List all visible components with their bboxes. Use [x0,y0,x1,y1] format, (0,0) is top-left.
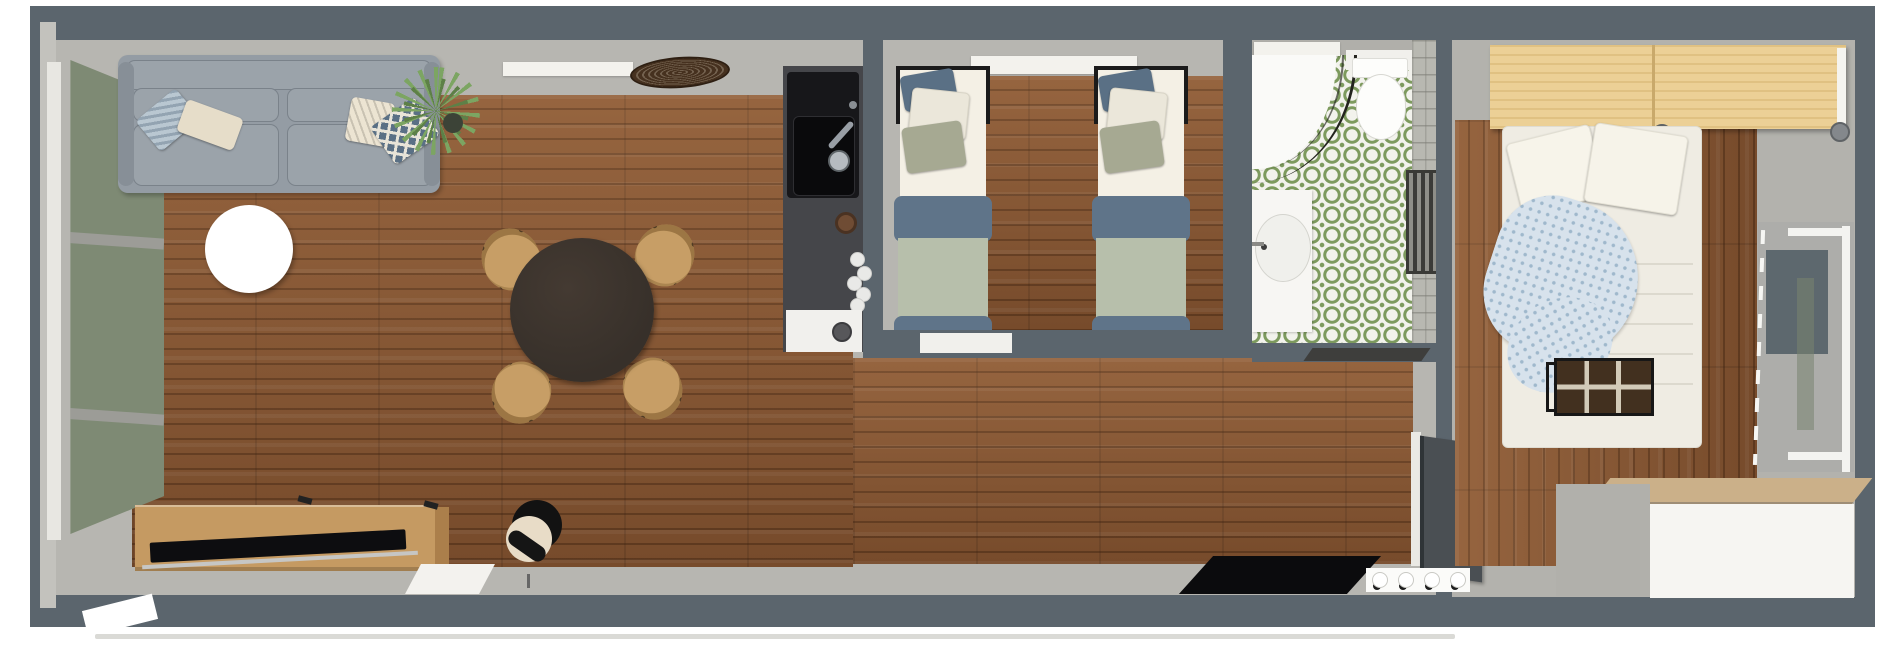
wall-hook[interactable] [1398,572,1414,588]
wall-hook[interactable] [1424,572,1440,588]
storage-bench[interactable] [1554,358,1654,416]
floor-plan-render [0,0,1894,648]
wall-hook[interactable] [1450,572,1466,588]
faucet-head[interactable] [828,150,850,172]
blanket-fold [894,196,992,242]
tv-sideboard-side [435,507,449,569]
blanket-fold [1092,196,1190,242]
stove-oven[interactable] [786,310,862,352]
clothes-rack-bar [1788,228,1850,236]
bathroom-shelf [1254,42,1340,56]
pine-wardrobe[interactable] [1490,45,1846,129]
round-coffee-table[interactable] [205,205,293,293]
wall-hook[interactable] [1372,572,1388,588]
wardrobe-seam [1652,45,1655,129]
kitchen-partition-wall [863,40,883,358]
dresser-side [1556,484,1650,596]
door-muntin-bar [60,407,165,425]
patio-door-frame [47,62,61,540]
sofa-back [126,60,432,90]
duvet [1096,238,1186,322]
potted-plant[interactable] [392,67,480,155]
bath-mat [1303,348,1430,361]
single-bed[interactable] [896,66,990,358]
pillow-sage [1099,120,1165,174]
dresser[interactable] [1650,504,1854,598]
wall-lamp[interactable] [1830,122,1850,142]
plate [850,252,865,267]
hallway-floor [853,358,1413,564]
faucet-valve [849,101,857,109]
door-muntin-bar [60,232,165,250]
clothes-rack-bar [1788,452,1850,460]
oven-dial[interactable] [832,322,852,342]
clothes-rack-rail[interactable] [1842,226,1850,472]
round-dining-table[interactable] [510,238,654,382]
wardrobe-end-panel [1837,48,1846,126]
sofa-armrest [118,62,134,186]
ground-shadow [95,634,1455,639]
basin-spout [1252,242,1264,246]
pillow-sage [901,120,967,174]
duvet [898,238,988,322]
floor-lamp-stem [527,574,530,588]
black-doormat [1179,556,1381,594]
toilet[interactable] [1356,74,1406,140]
pillow-white [1583,122,1688,216]
living-window-sill [503,62,633,76]
coffee-cup[interactable] [835,212,857,234]
rack-green-strip [1797,278,1814,430]
twin-bath-wall [1223,40,1252,358]
kitchen-counter[interactable] [783,66,863,352]
single-bed[interactable] [1094,66,1188,358]
twin-door-threshold [920,333,1012,353]
